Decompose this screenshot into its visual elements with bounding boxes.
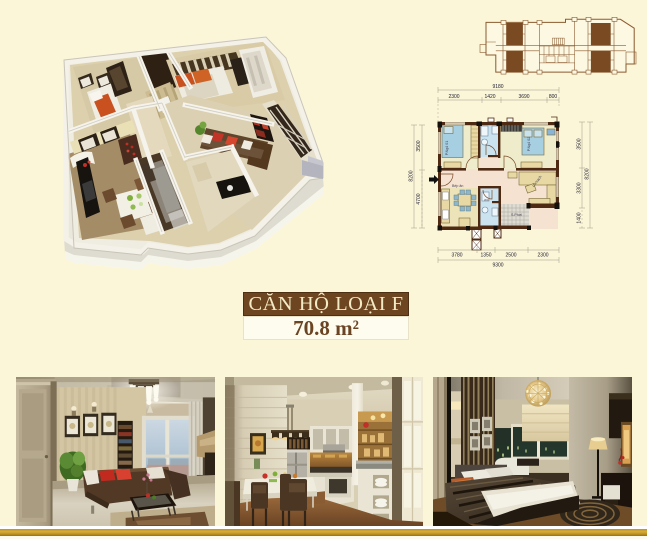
svg-text:3690: 3690	[518, 94, 529, 100]
svg-text:800: 800	[549, 94, 558, 100]
svg-text:WC: WC	[484, 198, 490, 202]
svg-text:3500: 3500	[416, 140, 422, 151]
svg-text:1350: 1350	[480, 253, 491, 259]
svg-text:2500: 2500	[505, 253, 516, 259]
svg-text:S.Phơi: S.Phơi	[511, 213, 522, 217]
svg-text:9300: 9300	[492, 263, 503, 269]
svg-text:P.Ngủ 01: P.Ngủ 01	[445, 141, 449, 156]
svg-text:P.Ngủ 02: P.Ngủ 02	[527, 137, 531, 152]
svg-text:9180: 9180	[492, 84, 503, 90]
svg-text:1400: 1400	[577, 212, 583, 223]
svg-text:2300: 2300	[537, 253, 548, 259]
svg-text:2300: 2300	[448, 94, 459, 100]
svg-text:8200: 8200	[409, 170, 415, 181]
svg-text:3500: 3500	[577, 138, 583, 149]
svg-text:4700: 4700	[416, 193, 422, 204]
svg-text:Bếp ăn: Bếp ăn	[452, 184, 463, 188]
svg-text:8200: 8200	[585, 168, 591, 179]
svg-text:3300: 3300	[577, 182, 583, 193]
svg-text:1420: 1420	[484, 94, 495, 100]
svg-text:3780: 3780	[451, 253, 462, 259]
